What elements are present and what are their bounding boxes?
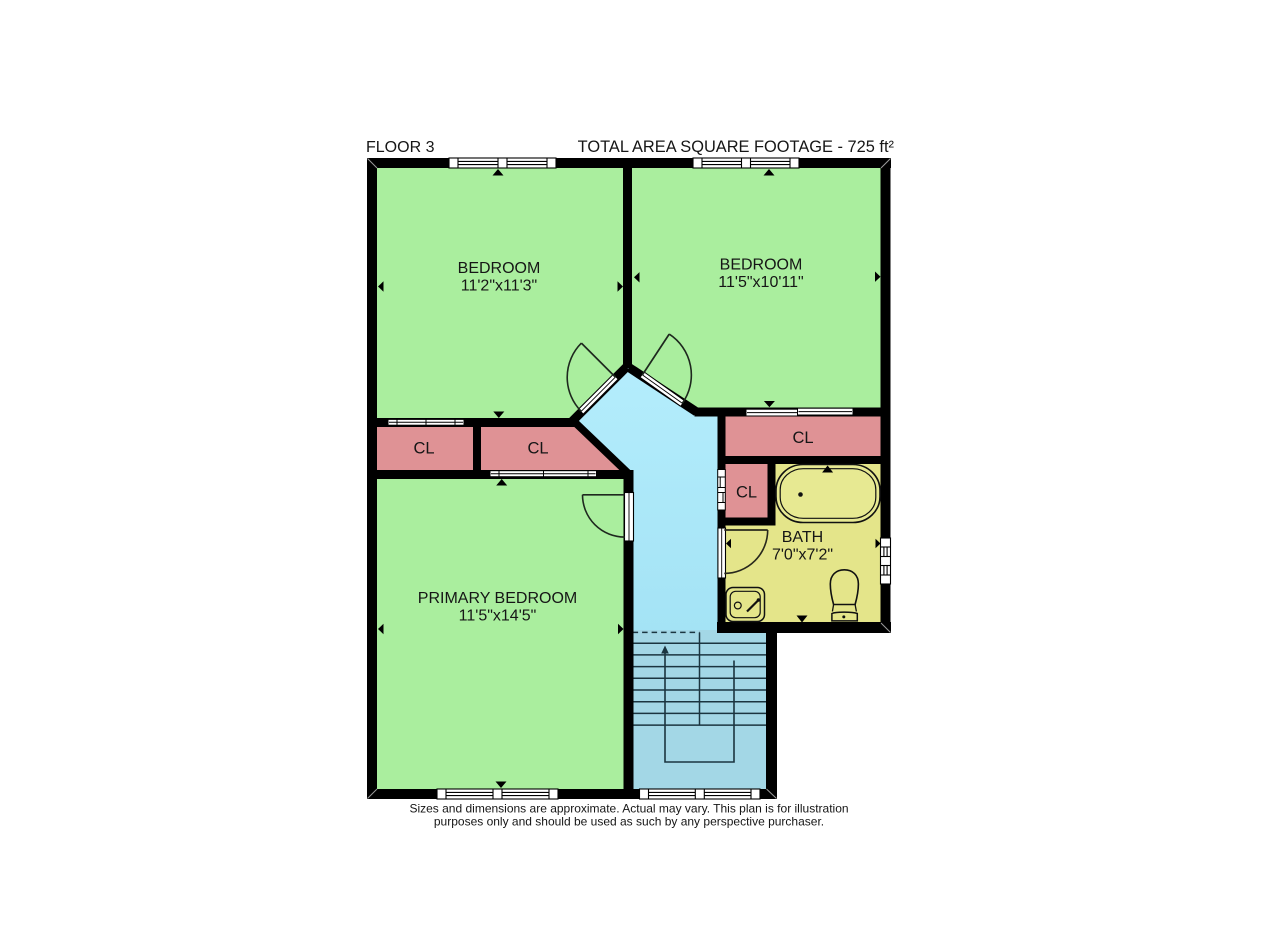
svg-text:7'0"x7'2": 7'0"x7'2" bbox=[772, 547, 833, 564]
svg-text:BEDROOM: BEDROOM bbox=[458, 260, 541, 277]
svg-text:PRIMARY BEDROOM: PRIMARY BEDROOM bbox=[418, 590, 577, 607]
svg-text:CL: CL bbox=[527, 440, 548, 458]
svg-text:BATH: BATH bbox=[782, 529, 823, 546]
svg-text:11'5"x10'11": 11'5"x10'11" bbox=[718, 274, 803, 291]
svg-text:TOTAL AREA SQUARE FOOTAGE - 72: TOTAL AREA SQUARE FOOTAGE - 725 ft² bbox=[578, 138, 895, 156]
svg-text:11'2"x11'3": 11'2"x11'3" bbox=[461, 278, 537, 295]
svg-text:purposes only and should be us: purposes only and should be used as such… bbox=[434, 815, 824, 829]
svg-text:FLOOR 3: FLOOR 3 bbox=[366, 139, 435, 156]
svg-text:BEDROOM: BEDROOM bbox=[720, 257, 803, 274]
svg-text:CL: CL bbox=[736, 484, 757, 502]
svg-text:11'5"x14'5": 11'5"x14'5" bbox=[459, 608, 537, 625]
svg-text:CL: CL bbox=[792, 429, 813, 447]
svg-text:Sizes and dimensions are appro: Sizes and dimensions are approximate. Ac… bbox=[409, 802, 848, 816]
svg-text:CL: CL bbox=[413, 440, 434, 458]
